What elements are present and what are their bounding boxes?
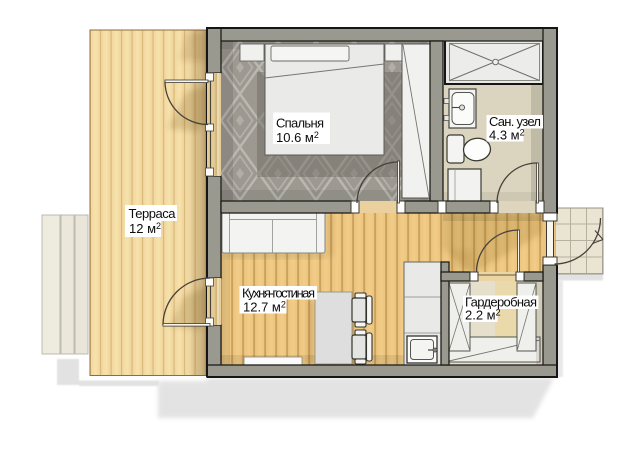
svg-text:12.7 м2: 12.7 м2 (243, 300, 286, 315)
svg-text:Терраса: Терраса (129, 206, 177, 221)
svg-text:Спальня: Спальня (276, 116, 324, 131)
svg-text:4.3 м2: 4.3 м2 (489, 128, 525, 143)
svg-text:2.2 м2: 2.2 м2 (465, 308, 501, 323)
svg-text:10.6 м2: 10.6 м2 (276, 130, 319, 145)
svg-text:Кухня-гостиная: Кухня-гостиная (242, 286, 315, 301)
